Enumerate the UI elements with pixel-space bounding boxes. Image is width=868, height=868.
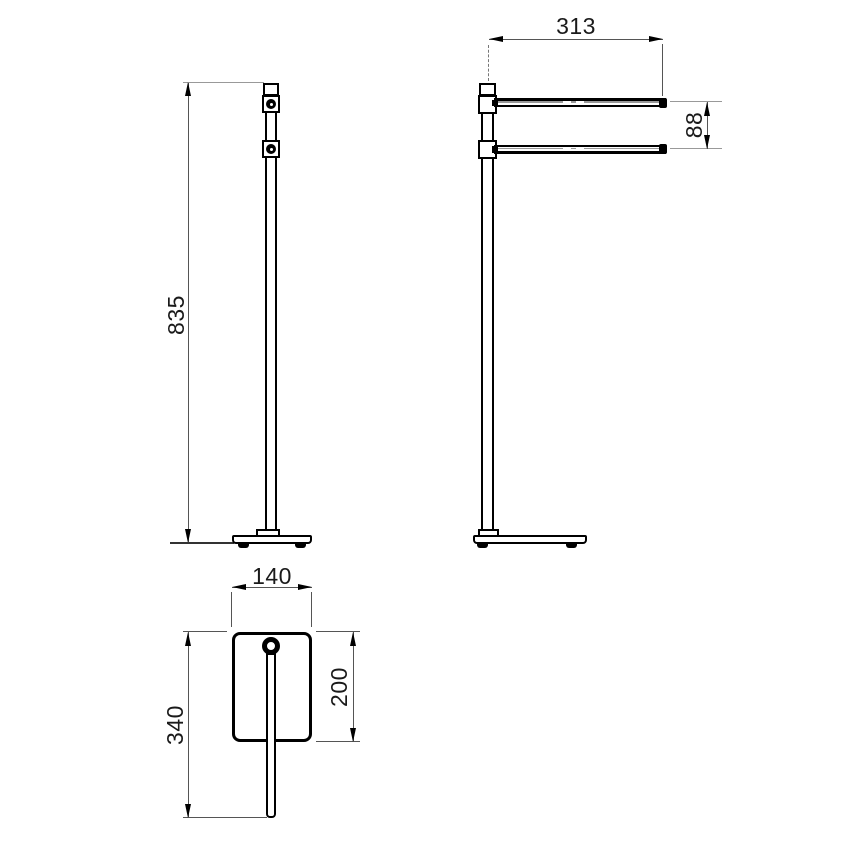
front-height-extension-bottom bbox=[170, 542, 234, 544]
arm-length-dimension-line bbox=[489, 39, 663, 40]
arrowhead-up-icon bbox=[185, 82, 191, 96]
base-depth-label: 200 bbox=[326, 657, 352, 717]
lower-screw-front bbox=[266, 144, 276, 154]
base-plate-front bbox=[232, 535, 312, 544]
overall-depth-extension-bottom bbox=[183, 817, 267, 818]
base-width-extension-left bbox=[231, 592, 232, 627]
arrowhead-right-icon bbox=[298, 584, 312, 590]
upper-screw-front bbox=[266, 99, 276, 109]
base-plate-side bbox=[473, 535, 587, 544]
lower-arm-junction bbox=[492, 146, 498, 153]
front-height-label: 835 bbox=[163, 285, 189, 345]
lower-arm-centerline-gap bbox=[563, 147, 571, 150]
upper-arm-centerline-gap bbox=[563, 101, 571, 104]
arrowhead-right-icon bbox=[649, 36, 663, 42]
arrowhead-up-icon bbox=[350, 632, 356, 646]
lower-arm-bottom-edge bbox=[494, 151, 666, 154]
front-height-extension-top bbox=[183, 82, 264, 83]
arm-bar-plan bbox=[266, 653, 276, 818]
arm-length-extension-right bbox=[662, 44, 663, 96]
arrowhead-down-icon bbox=[350, 728, 356, 742]
base-depth-dimension-line bbox=[353, 632, 354, 742]
upper-arm-centerline-gap bbox=[576, 101, 584, 104]
lower-arm-centerline-gap bbox=[576, 147, 584, 150]
upper-arm-junction bbox=[492, 100, 498, 107]
upper-arm-end-cap bbox=[659, 98, 667, 108]
arrowhead-left-icon bbox=[489, 36, 503, 42]
arrowhead-down-icon bbox=[185, 529, 191, 543]
overall-depth-label: 340 bbox=[162, 695, 188, 755]
base-width-label: 140 bbox=[242, 563, 302, 589]
technical-drawing: 835 313 bbox=[0, 0, 868, 868]
base-width-extension-right bbox=[311, 592, 312, 627]
arrowhead-left-icon bbox=[232, 584, 246, 590]
arrowhead-down-icon bbox=[185, 804, 191, 818]
arrowhead-up-icon bbox=[185, 632, 191, 646]
pole-circle-plan bbox=[262, 637, 280, 655]
upper-arm-bottom-edge bbox=[494, 105, 666, 108]
arm-spacing-label: 88 bbox=[681, 95, 707, 155]
lower-arm-end-cap bbox=[659, 144, 667, 154]
arm-length-label: 313 bbox=[546, 13, 606, 39]
arm-length-extension-left bbox=[488, 45, 489, 81]
